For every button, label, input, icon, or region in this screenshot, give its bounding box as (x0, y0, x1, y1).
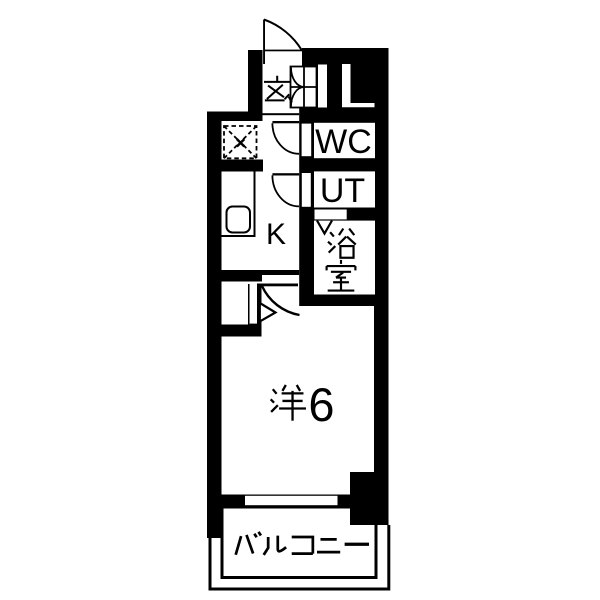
svg-text:WC: WC (315, 123, 372, 161)
svg-text:K: K (266, 218, 286, 251)
svg-text:6: 6 (308, 378, 334, 431)
svg-text:UT: UT (320, 172, 365, 210)
